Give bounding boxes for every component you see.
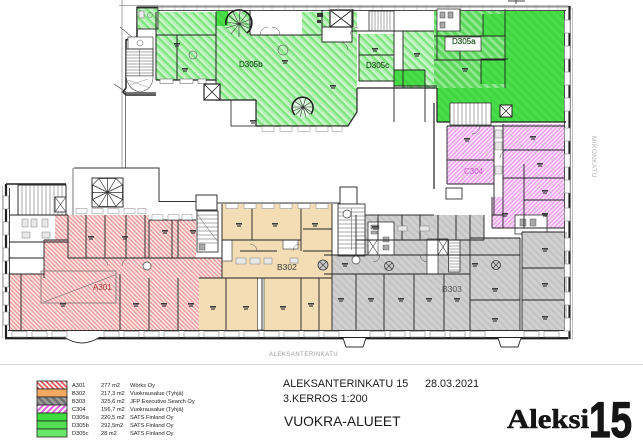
svg-text:15: 15 <box>589 392 632 448</box>
svg-text:B302: B302 <box>277 262 297 272</box>
svg-text:VUOKRA-ALUEET: VUOKRA-ALUEET <box>284 414 401 429</box>
svg-text:B303: B303 <box>72 399 85 405</box>
svg-text:3.KERROS 1:200: 3.KERROS 1:200 <box>283 393 368 405</box>
svg-text:JFP Executive Search Oy: JFP Executive Search Oy <box>130 399 195 405</box>
svg-text:Vuokrausalue (Tyhjä): Vuokrausalue (Tyhjä) <box>130 407 184 413</box>
svg-text:217,3 m2: 217,3 m2 <box>101 391 125 397</box>
svg-text:325,6 m2: 325,6 m2 <box>101 399 125 405</box>
svg-text:D305c: D305c <box>72 431 89 437</box>
svg-text:ALEKSANTERINKATU: ALEKSANTERINKATU <box>269 352 338 358</box>
svg-text:A301: A301 <box>72 383 85 389</box>
svg-text:B303: B303 <box>442 284 462 294</box>
svg-text:ALEKSANTERINKATU 15: ALEKSANTERINKATU 15 <box>283 378 408 390</box>
svg-text:D305c: D305c <box>366 61 389 70</box>
svg-text:28 m2: 28 m2 <box>101 431 117 437</box>
svg-text:C304: C304 <box>464 167 484 176</box>
svg-text:D305a: D305a <box>72 415 90 421</box>
svg-text:292,5m2: 292,5m2 <box>101 423 123 429</box>
svg-text:277 m2: 277 m2 <box>101 383 120 389</box>
svg-text:Aleksi: Aleksi <box>507 403 589 434</box>
svg-text:D305a: D305a <box>452 37 476 46</box>
svg-text:C304: C304 <box>72 407 86 413</box>
svg-text:220,5 m2: 220,5 m2 <box>101 415 125 421</box>
svg-text:D305b: D305b <box>72 423 89 429</box>
svg-text:Vuokrausalue (Tyhjä): Vuokrausalue (Tyhjä) <box>130 391 184 397</box>
svg-text:156,7 m2: 156,7 m2 <box>101 407 125 413</box>
svg-text:SATS Finland Oy: SATS Finland Oy <box>130 415 174 421</box>
svg-text:SATS Finland Oy: SATS Finland Oy <box>130 423 174 429</box>
svg-text:A301: A301 <box>93 283 112 292</box>
svg-text:B302: B302 <box>72 391 85 397</box>
svg-text:28.03.2021: 28.03.2021 <box>425 378 479 390</box>
svg-text:SATS Finland Oy: SATS Finland Oy <box>130 431 174 437</box>
svg-text:D305b: D305b <box>239 60 263 69</box>
svg-text:Wörks Oy: Wörks Oy <box>130 383 155 389</box>
svg-text:MIKONKATU: MIKONKATU <box>590 136 597 178</box>
